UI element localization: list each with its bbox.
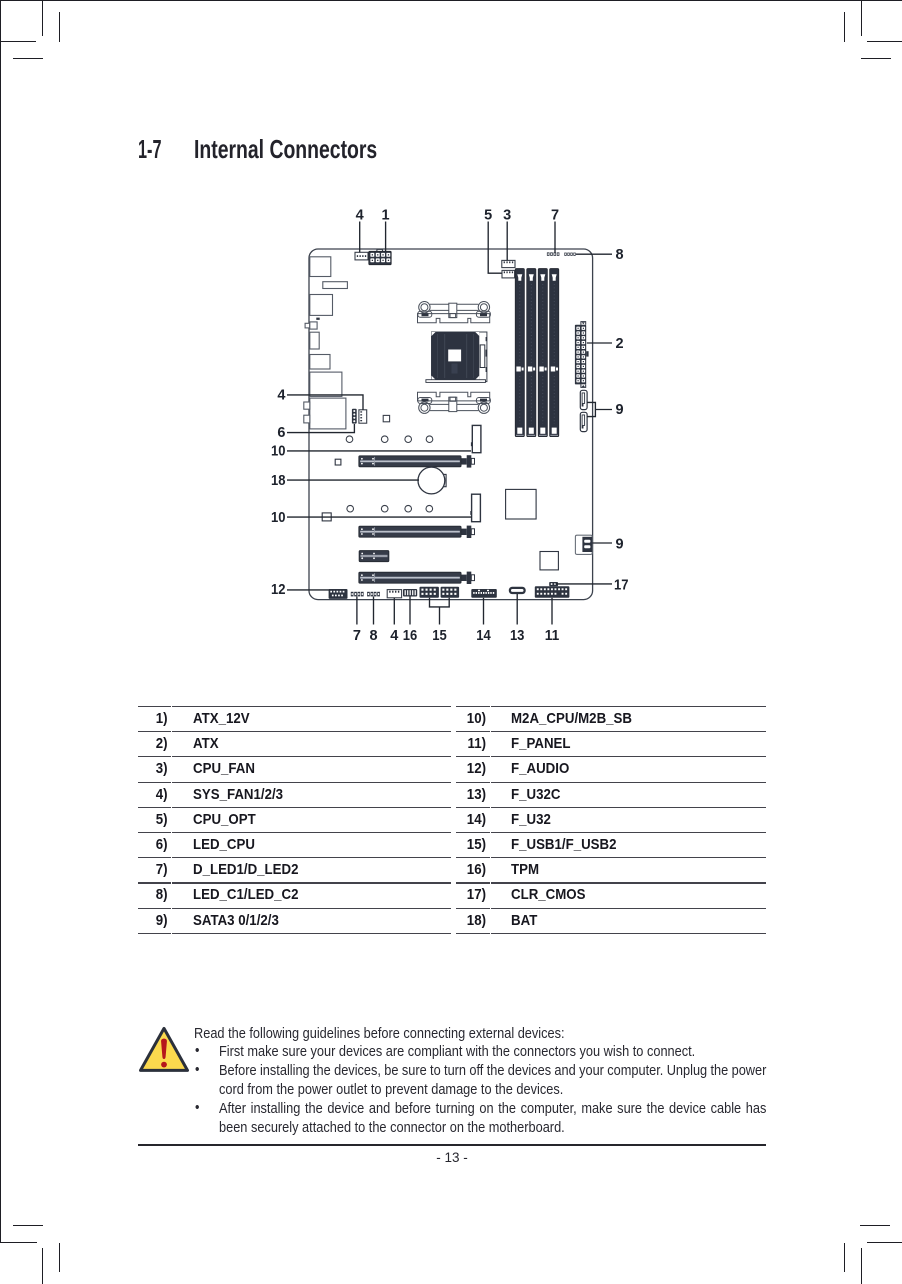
svg-text:9: 9 xyxy=(616,402,624,418)
svg-text:17: 17 xyxy=(614,578,629,594)
svg-text:4: 4 xyxy=(277,388,285,404)
svg-text:8: 8 xyxy=(616,247,624,263)
svg-text:7: 7 xyxy=(551,208,559,224)
svg-text:11: 11 xyxy=(545,628,560,644)
svg-text:2: 2 xyxy=(616,336,624,352)
svg-text:9: 9 xyxy=(616,537,624,553)
svg-text:8: 8 xyxy=(369,628,377,644)
svg-text:3: 3 xyxy=(503,208,511,224)
svg-text:1: 1 xyxy=(382,208,390,224)
svg-text:5: 5 xyxy=(484,208,492,224)
svg-text:18: 18 xyxy=(271,473,286,489)
svg-text:4: 4 xyxy=(390,628,398,644)
svg-text:16: 16 xyxy=(403,628,418,644)
svg-text:15: 15 xyxy=(432,628,447,644)
svg-text:14: 14 xyxy=(476,628,491,644)
svg-text:13: 13 xyxy=(510,628,525,644)
svg-text:7: 7 xyxy=(353,628,361,644)
svg-text:6: 6 xyxy=(277,425,285,441)
svg-text:12: 12 xyxy=(271,582,286,598)
svg-text:10: 10 xyxy=(271,443,286,459)
svg-text:10: 10 xyxy=(271,510,286,526)
svg-text:4: 4 xyxy=(356,208,364,224)
